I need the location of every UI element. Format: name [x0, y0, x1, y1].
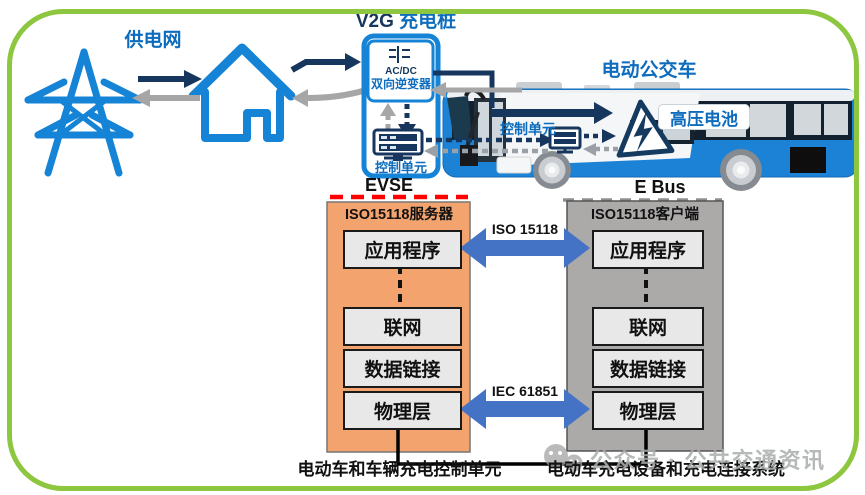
house-icon: [193, 48, 291, 138]
client-layer-network: 联网: [592, 307, 704, 346]
bus-title: 电动公交车: [593, 60, 705, 81]
bus-control-label: 控制单元: [496, 122, 560, 138]
charge-port: [460, 145, 478, 166]
iec61851-label: IEC 61851: [477, 384, 573, 400]
acdc-label-line2: 双向逆变器: [366, 78, 436, 91]
iso15118-label: ISO 15118: [477, 222, 573, 238]
bus-window: [824, 104, 848, 135]
client-layer-application: 应用程序: [592, 230, 704, 269]
bus-wheel-front: [533, 151, 571, 189]
bus-window: [750, 104, 786, 137]
battery-label-text: 高压电池: [670, 105, 738, 130]
evse-label: EVSE: [352, 175, 426, 195]
house-to-charger-arrow: [292, 53, 361, 71]
server-layer-network: 联网: [343, 307, 462, 346]
power-grid-icon: [28, 52, 140, 173]
charger-control-label: 控制单元: [364, 161, 438, 176]
charger-title-en: V2G: [356, 11, 394, 32]
bus-window: [794, 104, 821, 135]
acdc-label-line1: AC/DC: [369, 66, 433, 77]
bus-wheel-rear: [720, 149, 762, 191]
v2g-diagram-canvas: 供电网 V2G 充电桩 AC/DC 双向逆变器 控制单元 电动公交车 控制单元 …: [0, 0, 865, 495]
ebus-label: E Bus: [620, 177, 700, 197]
server-layer-datalink: 数据链接: [343, 349, 462, 388]
bus-rear-panel: [790, 147, 826, 173]
watermark-text: 公众号 · 公共交通资讯: [590, 443, 826, 475]
charger-title-cn: 充电桩: [399, 11, 456, 32]
charger-title: V2G 充电桩: [348, 11, 464, 32]
footer-left-label: 电动车和车辆充电控制单元: [282, 460, 517, 479]
client-layer-datalink: 数据链接: [592, 349, 704, 388]
server-layer-physical: 物理层: [343, 391, 462, 430]
grid-to-house-arrow: [138, 70, 202, 88]
server-stack-title: ISO15118服务器: [329, 207, 469, 223]
grid-label: 供电网: [108, 30, 198, 51]
house-to-grid-arrow: [132, 89, 200, 107]
battery-label: 高压电池: [658, 104, 750, 130]
server-layer-application: 应用程序: [343, 230, 462, 269]
charging-pile-outline: [364, 36, 438, 176]
client-stack-title: ISO15118客户端: [569, 207, 721, 223]
client-layer-physical: 物理层: [592, 391, 704, 430]
